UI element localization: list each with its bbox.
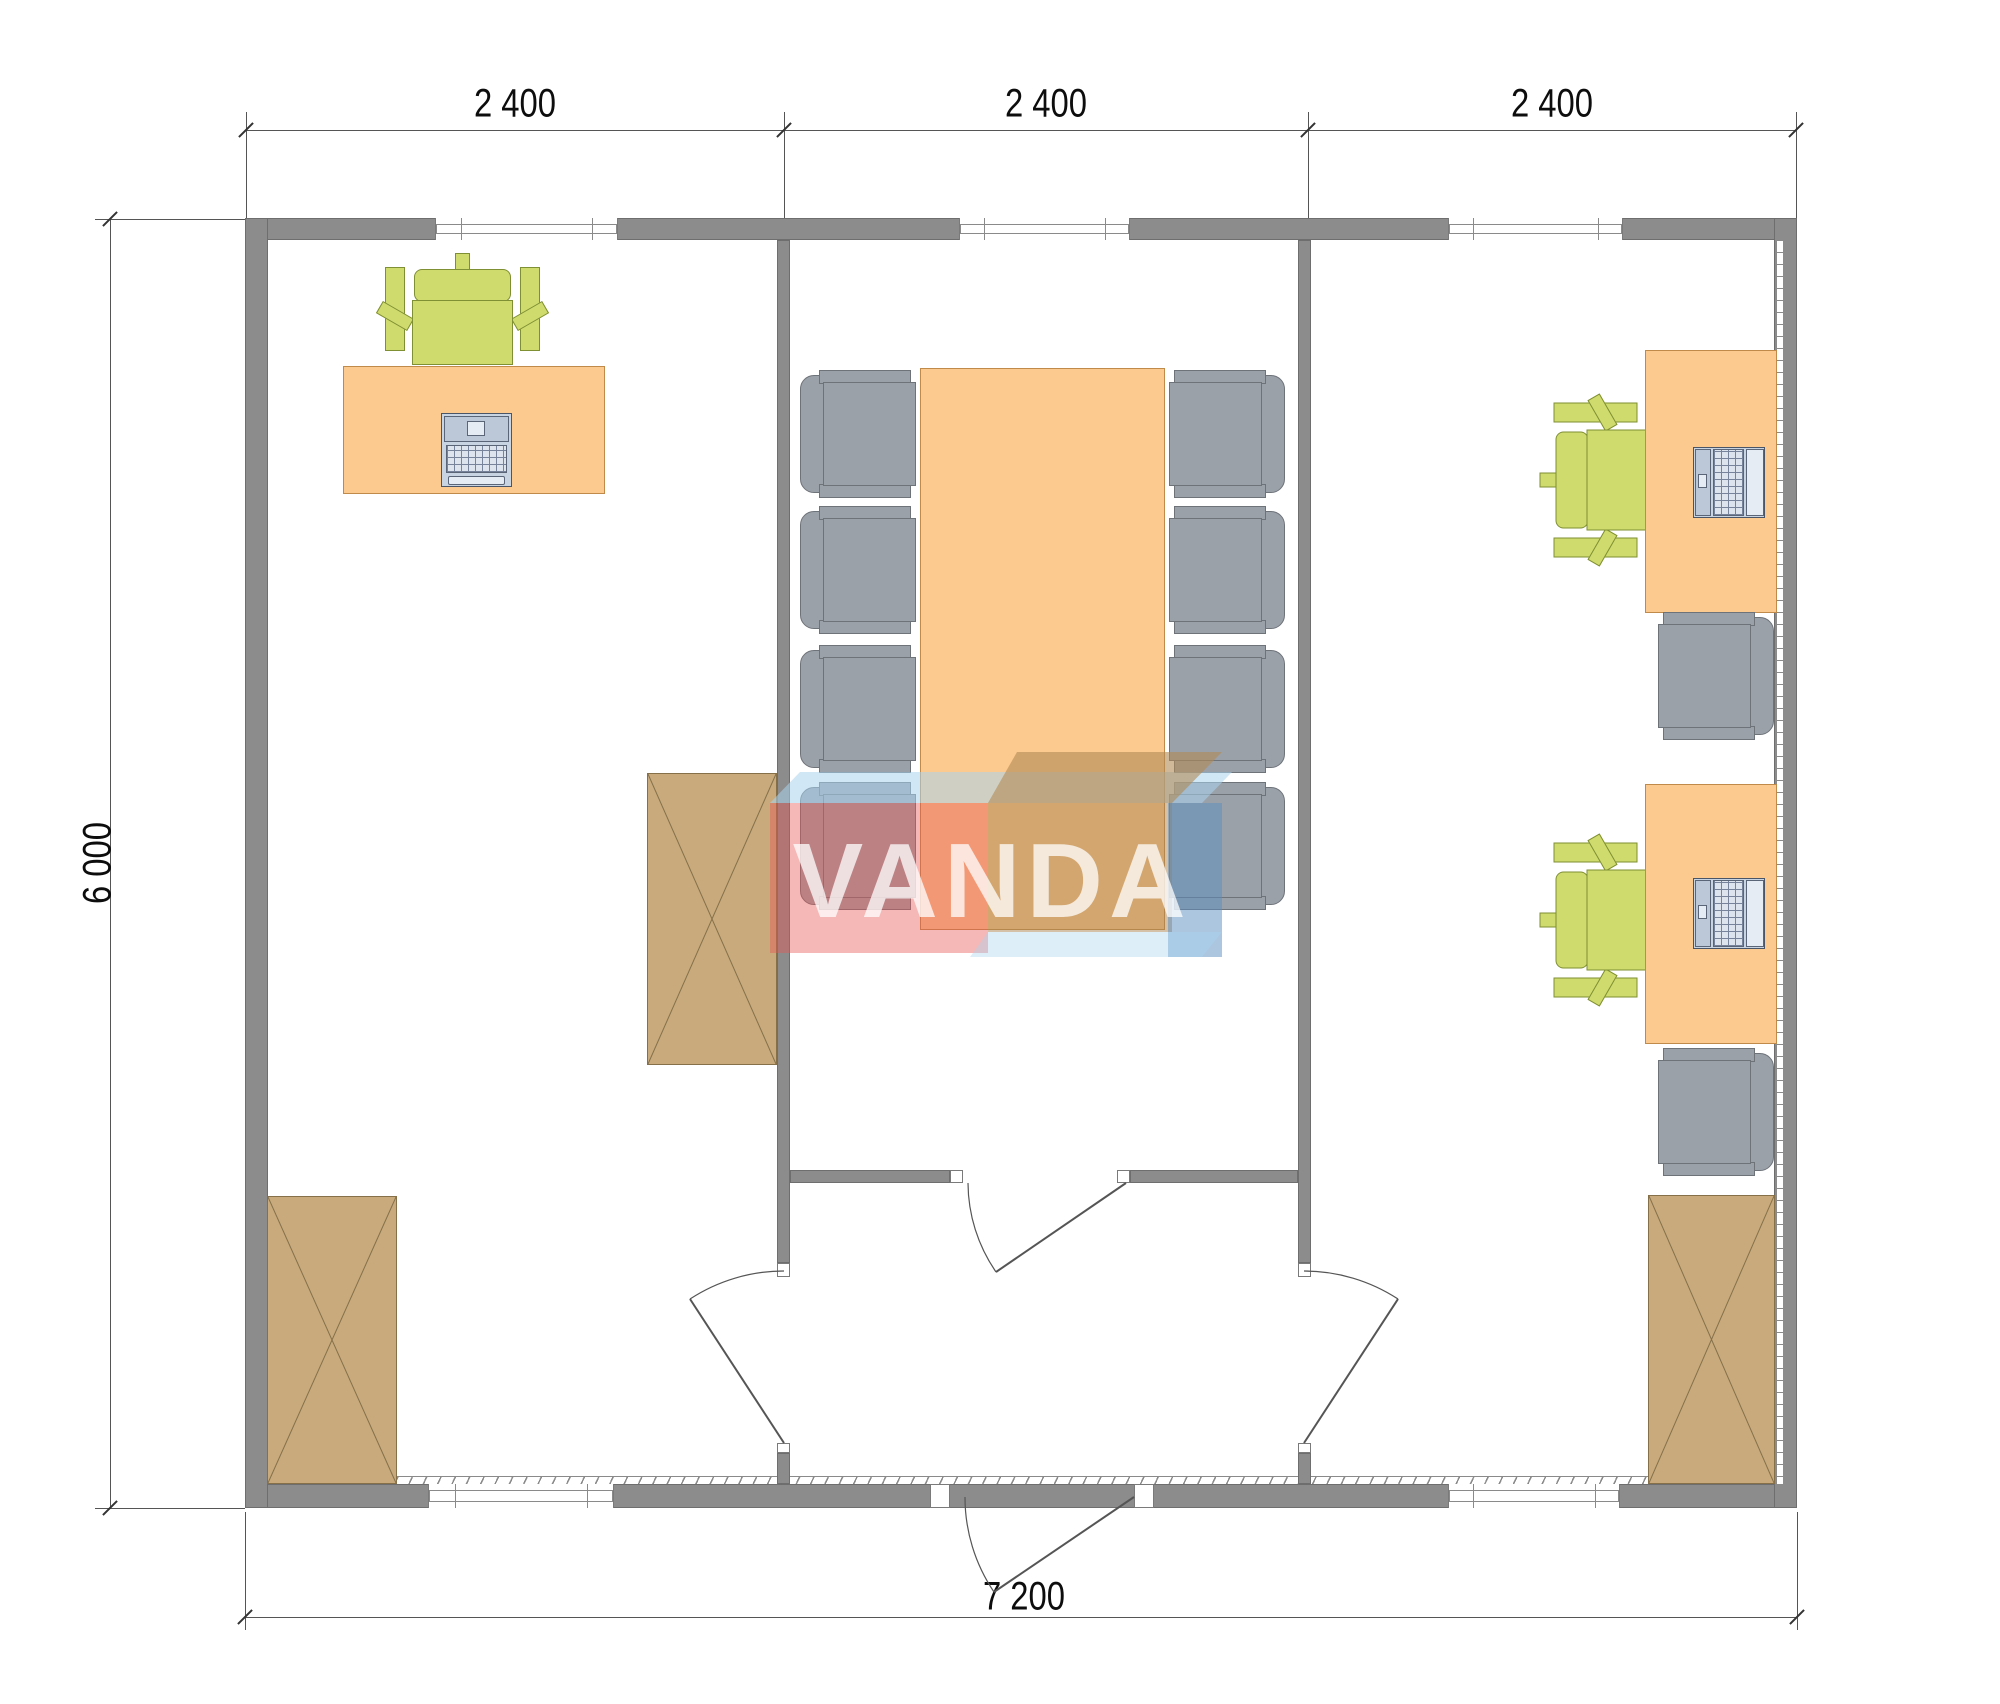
conference-chair [1167,506,1285,634]
extension-line [95,219,245,220]
cabinet [647,773,777,1065]
dimension-label: 7 200 [983,1575,1065,1620]
door-jamb [777,1263,790,1277]
window [1448,218,1623,240]
door-jamb [1298,1263,1311,1277]
door-leaf [1304,1299,1398,1443]
dimension-label: 6 000 [76,822,121,904]
door-swing-arc [1304,1271,1398,1299]
floor-plan: 2 400 2 400 2 400 6 000 7 200 [0,0,2000,1704]
window [959,218,1130,240]
wall-left [245,218,268,1508]
wall-hatch-strip [1776,240,1783,1484]
conference-chair [1167,370,1285,498]
cabinet [267,1196,397,1484]
conference-chair [800,645,918,773]
logo-bottom-face [970,932,1222,957]
cabinet-cross [648,774,776,1064]
conference-chair [800,370,918,498]
door-jamb [1298,1443,1311,1453]
wall-hatch-strip [268,1476,1774,1484]
door-jamb [950,1170,963,1183]
door-swing-arc [690,1271,784,1299]
desktop-computer [441,413,512,487]
dimension-label: 2 400 [1511,82,1593,127]
laptop [1693,447,1765,518]
partition-left [777,240,790,1263]
laptop [1693,878,1765,949]
task-chair [1656,1048,1774,1176]
conference-chair [800,506,918,634]
extension-line [1797,1512,1798,1630]
conference-chair [800,782,918,910]
door-jamb [1134,1484,1154,1508]
partition-left-stub [777,1453,790,1484]
door-leaf [996,1183,1126,1272]
cabinet [1648,1195,1775,1484]
extension-line [95,1508,245,1509]
conference-table [920,368,1165,930]
cabinet-cross [268,1197,396,1483]
door-jamb [930,1484,950,1508]
window [435,218,618,240]
office-chair [385,253,540,365]
dimension-line-top [246,130,1796,131]
partition-right-stub [1298,1453,1311,1484]
partition-horizontal-right [1130,1170,1298,1183]
cabinet-cross [1649,1196,1774,1483]
task-chair [1656,612,1774,740]
dimension-label: 2 400 [1005,82,1087,127]
office-chair [1540,843,1652,998]
door-leaf [690,1299,784,1443]
office-chair [1540,403,1652,558]
door-jamb [1117,1170,1130,1183]
door-swing-arc [968,1183,996,1272]
conference-chair [1167,782,1285,910]
conference-chair [1167,645,1285,773]
door-jamb [777,1443,790,1453]
partition-right [1298,240,1311,1263]
window [428,1484,614,1508]
dimension-label: 2 400 [474,82,556,127]
extension-line [245,1512,246,1630]
window [1448,1484,1620,1508]
partition-horizontal-left [790,1170,950,1183]
